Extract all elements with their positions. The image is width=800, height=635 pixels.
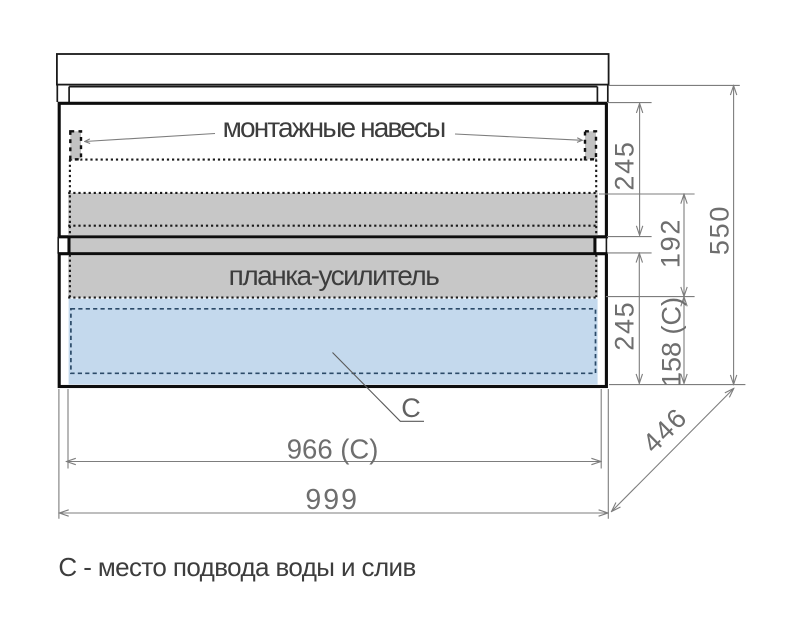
svg-text:С - место подвода воды и слив: С - место подвода воды и слив [58,552,415,582]
svg-text:999: 999 [305,484,359,516]
svg-text:966 (С): 966 (С) [287,433,379,464]
svg-text:245: 245 [610,140,640,190]
svg-text:245: 245 [609,301,639,351]
svg-text:158 (C): 158 (C) [657,297,687,387]
svg-text:550: 550 [704,205,734,255]
svg-text:монтажные навесы: монтажные навесы [223,112,445,143]
svg-text:планка-усилитель: планка-усилитель [229,260,440,291]
svg-text:192: 192 [656,218,686,268]
svg-text:C: C [401,393,421,423]
